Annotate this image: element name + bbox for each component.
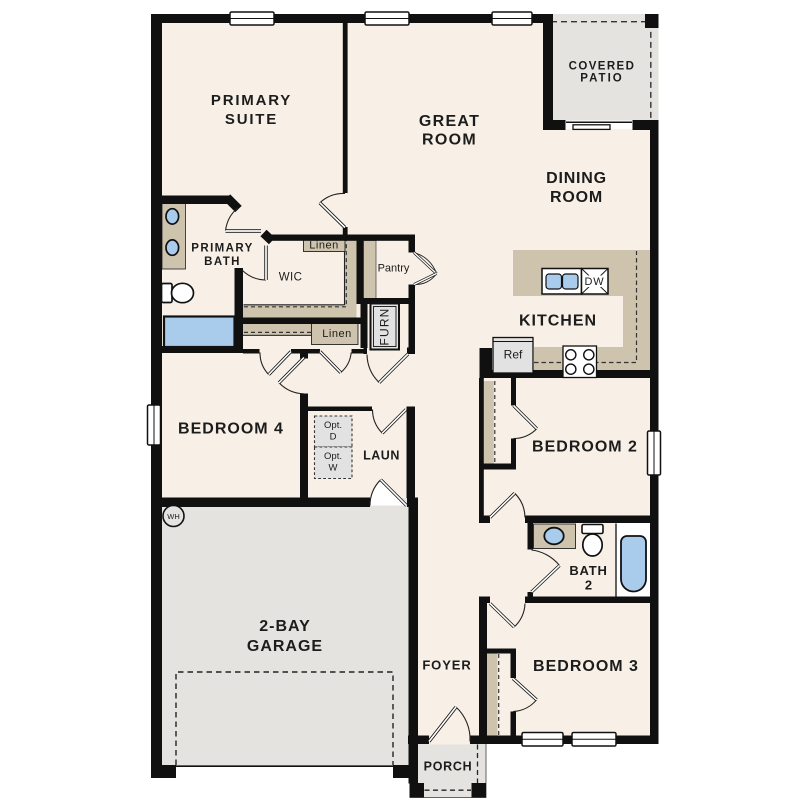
svg-text:BATH: BATH <box>569 563 607 578</box>
svg-text:Linen: Linen <box>309 240 338 252</box>
svg-text:Opt.: Opt. <box>324 451 342 462</box>
svg-text:DW: DW <box>585 276 605 288</box>
svg-text:BATH: BATH <box>204 256 241 268</box>
svg-text:Pantry: Pantry <box>378 263 410 275</box>
svg-text:PRIMARY: PRIMARY <box>191 243 253 255</box>
svg-text:SUITE: SUITE <box>225 111 278 128</box>
svg-text:FOYER: FOYER <box>422 658 471 673</box>
svg-text:2-BAY: 2-BAY <box>259 618 311 635</box>
svg-text:ROOM: ROOM <box>550 189 603 206</box>
svg-text:PATIO: PATIO <box>580 73 623 85</box>
svg-text:GARAGE: GARAGE <box>247 638 323 655</box>
svg-text:Ref: Ref <box>504 348 523 362</box>
svg-text:BEDROOM 2: BEDROOM 2 <box>532 439 638 456</box>
svg-text:PRIMARY: PRIMARY <box>211 92 292 109</box>
svg-text:BEDROOM 4: BEDROOM 4 <box>178 421 284 438</box>
svg-text:PORCH: PORCH <box>424 760 473 774</box>
svg-text:GREAT: GREAT <box>419 113 480 130</box>
svg-text:Opt.: Opt. <box>324 420 342 431</box>
svg-text:WIC: WIC <box>279 272 303 284</box>
svg-text:COVERED: COVERED <box>569 61 636 73</box>
svg-text:Linen: Linen <box>322 328 351 340</box>
svg-text:KITCHEN: KITCHEN <box>519 313 597 330</box>
svg-text:D: D <box>330 432 337 443</box>
svg-text:LAUN: LAUN <box>363 449 400 463</box>
svg-text:DINING: DINING <box>546 170 607 187</box>
svg-text:ROOM: ROOM <box>422 132 477 149</box>
svg-text:2: 2 <box>585 578 592 593</box>
svg-text:BEDROOM 3: BEDROOM 3 <box>533 658 639 675</box>
svg-text:FURN: FURN <box>378 307 392 345</box>
svg-text:WH: WH <box>167 512 180 521</box>
svg-text:W: W <box>329 463 338 474</box>
